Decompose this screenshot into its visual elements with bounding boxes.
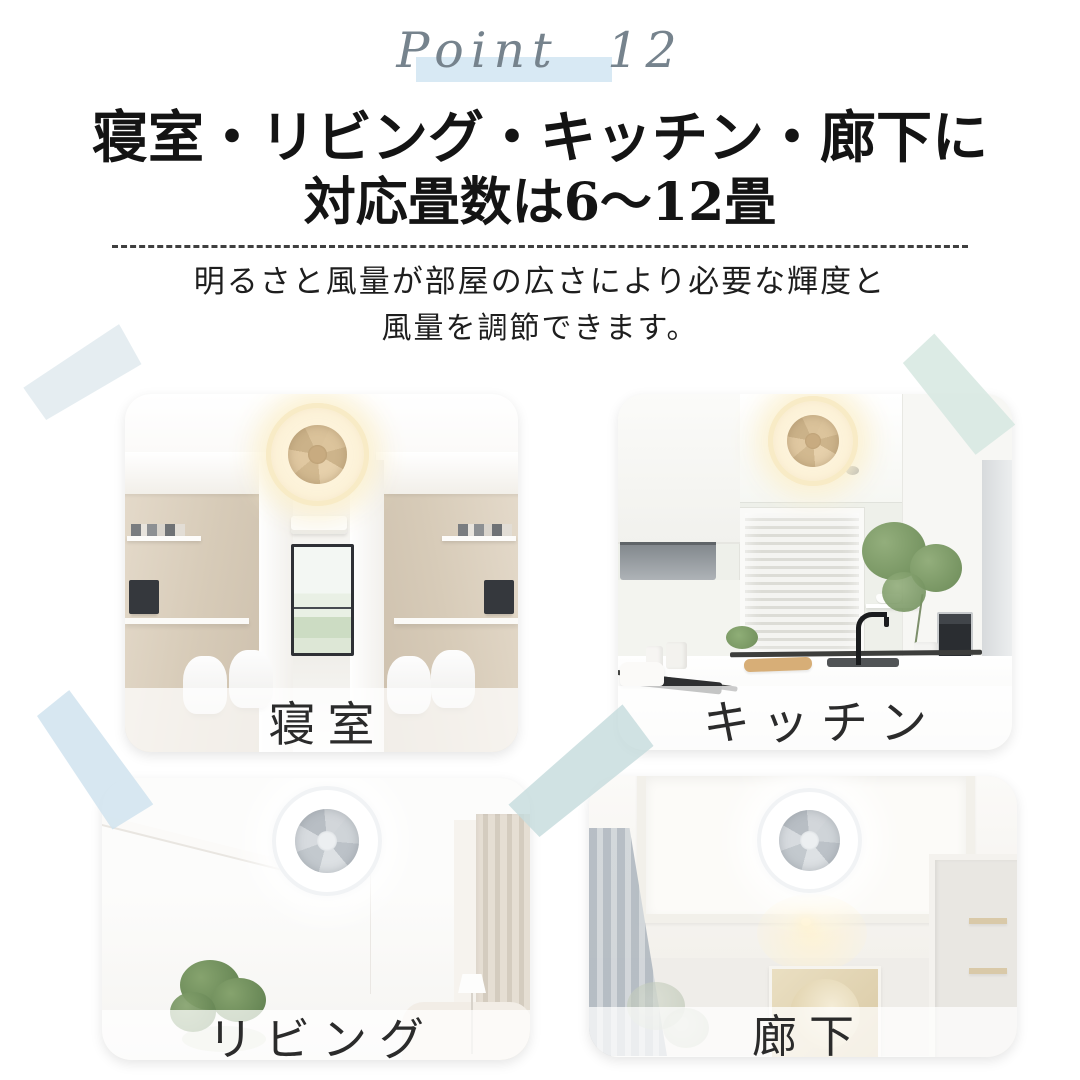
subtitle-line-2: 風量を調節できます。 (0, 306, 1080, 352)
room-label-living: リビング (102, 1010, 530, 1060)
photo-living: リビング (102, 778, 530, 1060)
subtitle: 明るさと風量が部屋の広さにより必要な輝度と 風量を調節できます。 (0, 258, 1080, 352)
floor-lamp-shade (458, 974, 486, 993)
ceiling-fan-light (757, 788, 862, 893)
title-line-1: 寝室・リビング・キッチン・廊下に (0, 104, 1080, 172)
cutting-board (744, 657, 812, 672)
ceiling-fan-light (272, 786, 382, 896)
ceiling-fan-light (266, 403, 369, 506)
product-point-page: Point 12 寝室・リビング・キッチン・廊下に 対応畳数は6〜12畳 明るさ… (0, 0, 1080, 1080)
range-hood (620, 542, 716, 580)
desk-monitor-right (484, 580, 514, 614)
downlight (801, 918, 811, 926)
wall-shelf-left (127, 536, 201, 541)
room-label-kitchen: キッチン (618, 686, 1012, 750)
lidded-pot (620, 662, 664, 686)
kitchen-faucet (856, 612, 887, 665)
bunk-rail-left (125, 452, 267, 494)
bunk-rail-right (376, 452, 518, 494)
point-header: Point 12 (0, 22, 1080, 79)
point-label: Point 12 (396, 22, 683, 79)
balcony-door (291, 544, 354, 656)
photo-bedroom: 寝室 (125, 394, 518, 752)
desk-right (394, 618, 518, 624)
doorway-shelf (969, 918, 1007, 924)
balcony-railing (294, 607, 351, 609)
fridge-panel (982, 460, 1012, 680)
canister (666, 642, 687, 669)
fan-hub (308, 445, 327, 464)
downlight-glow (757, 894, 867, 972)
ceiling-fan-light (768, 396, 858, 486)
subtitle-line-1: 明るさと風量が部屋の広さにより必要な輝度と (0, 258, 1080, 306)
dashed-divider (112, 245, 968, 248)
fan-hub (317, 831, 337, 851)
photo-hallway: 廊下 (589, 776, 1017, 1057)
wall-shelf-right (442, 536, 516, 541)
potted-plant-foliage (882, 572, 926, 612)
page-title: 寝室・リビング・キッチン・廊下に 対応畳数は6〜12畳 (0, 104, 1080, 234)
desk-monitor-left (129, 580, 159, 614)
room-label-hallway: 廊下 (589, 1007, 1017, 1057)
desk-left (125, 618, 249, 624)
doorway-shelf (969, 968, 1007, 974)
upper-cabinet-left (618, 394, 740, 544)
shelf-items-left (131, 524, 185, 536)
shelf-items-right (458, 524, 512, 536)
faucet-spout (884, 617, 889, 627)
fan-hub (800, 831, 819, 850)
counter-plant (726, 626, 758, 649)
kitchen-window-blinds (740, 508, 864, 660)
air-conditioner (291, 516, 347, 534)
room-label-bedroom: 寝室 (125, 688, 518, 752)
photo-kitchen: キッチン (618, 394, 1012, 750)
title-line-2: 対応畳数は6〜12畳 (0, 172, 1080, 234)
